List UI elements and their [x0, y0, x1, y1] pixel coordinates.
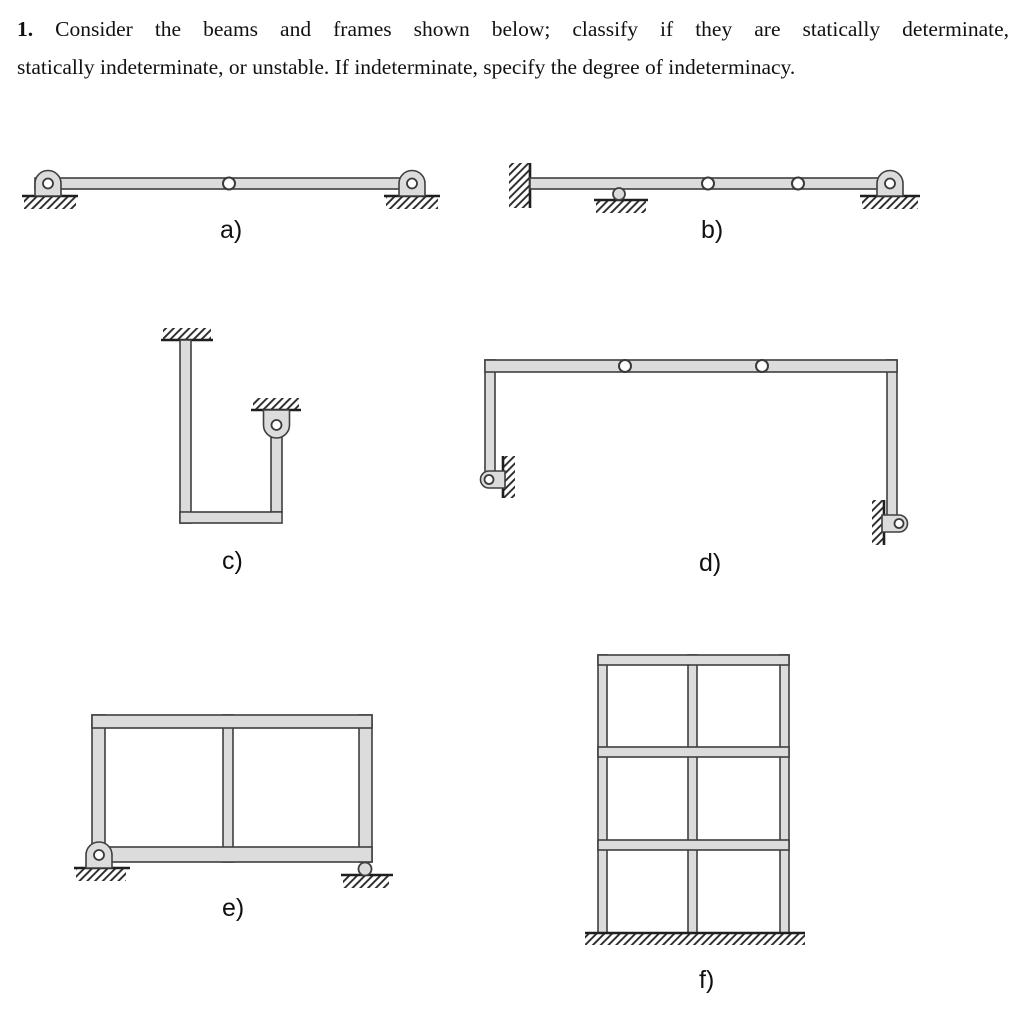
pin-support-icon [35, 171, 61, 197]
internal-hinge-icon [702, 178, 714, 190]
pin-support-icon [399, 171, 425, 197]
internal-hinge-icon [792, 178, 804, 190]
figure-c [150, 318, 310, 538]
figure-c-label: c) [222, 547, 243, 576]
column-member [359, 715, 372, 862]
wall-pin-support-icon [481, 471, 506, 488]
ground-hatch [22, 196, 440, 209]
wall-hatch [503, 456, 884, 545]
wall-pin-support-icon [882, 515, 908, 532]
beam-member [598, 840, 789, 850]
pin-support-icon [877, 171, 903, 197]
figure-b [498, 152, 928, 221]
figure-d-label: d) [699, 549, 721, 578]
figure-d [468, 352, 928, 557]
figure-b-diagram [498, 152, 928, 216]
column-member [688, 655, 697, 933]
figure-f [578, 646, 813, 953]
frame-members [92, 715, 372, 862]
column-member [92, 715, 105, 862]
beam-member [598, 747, 789, 757]
figure-e-label: e) [222, 894, 244, 923]
frame-members [598, 655, 789, 933]
figure-e [68, 703, 403, 898]
ground-hatch [585, 933, 805, 945]
problem-number: 1. [17, 17, 33, 41]
column-member [223, 715, 233, 862]
column-member [180, 340, 191, 523]
beam-member [180, 512, 282, 523]
joint-patch [181, 513, 190, 522]
problem-text-line1: Consider the beams and frames shown belo… [55, 17, 1009, 41]
joint-patch [486, 361, 494, 371]
figure-a [18, 158, 448, 221]
problem-line-1: 1. Consider the beams and frames shown b… [17, 10, 1009, 48]
internal-hinge-icon [619, 360, 631, 372]
internal-hinge-icon [223, 178, 235, 190]
figure-a-label: a) [220, 216, 242, 245]
joint-patch [272, 513, 281, 522]
pin-support-icon [86, 842, 112, 868]
beam-member [92, 847, 372, 862]
ceiling-pin-support-icon [264, 410, 290, 438]
joint-patch [888, 361, 896, 371]
ground-hatch [74, 868, 393, 888]
beam-member [485, 360, 897, 372]
figure-b-label: b) [701, 216, 723, 245]
figure-f-diagram [578, 646, 813, 948]
beam-member [92, 715, 372, 728]
fixed-wall-support-icon [509, 163, 530, 208]
ceiling-fixed-support-icon [161, 328, 213, 340]
roller-support-icon [613, 188, 625, 200]
column-member [887, 360, 897, 518]
document-page: 1. Consider the beams and frames shown b… [0, 0, 1024, 1015]
figure-c-diagram [150, 318, 310, 533]
figure-d-diagram [468, 352, 928, 552]
ground-hatch [594, 196, 920, 213]
column-member [598, 655, 607, 933]
beam-member [598, 655, 789, 665]
internal-hinge-icon [756, 360, 768, 372]
problem-statement: 1. Consider the beams and frames shown b… [17, 10, 1009, 86]
roller-support-icon [359, 863, 372, 876]
figure-f-label: f) [699, 966, 714, 995]
column-member [780, 655, 789, 933]
column-member [485, 360, 495, 473]
figure-e-diagram [68, 703, 403, 893]
ceiling-hatch [251, 398, 301, 410]
problem-line-2: statically indeterminate, or unstable. I… [17, 48, 1009, 86]
figure-a-diagram [18, 158, 448, 216]
